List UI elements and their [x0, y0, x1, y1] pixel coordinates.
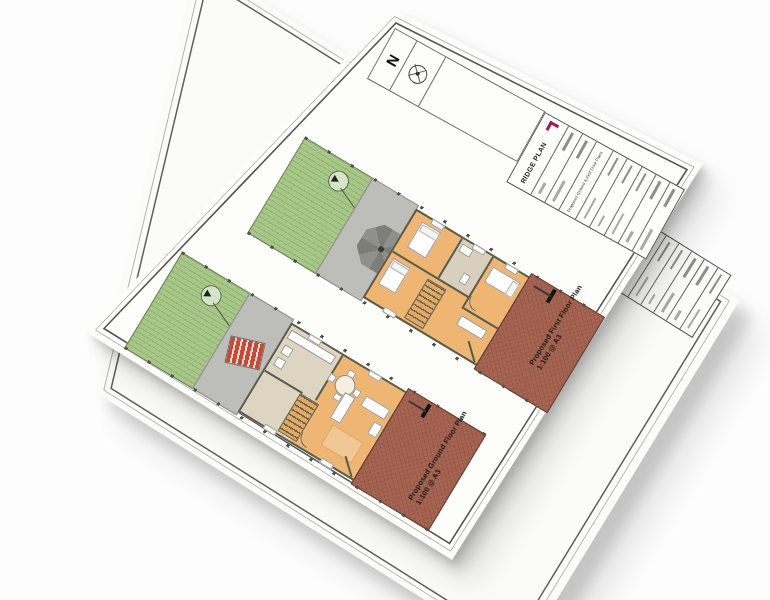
sofa: [360, 395, 390, 420]
tree-icon: [197, 281, 226, 310]
top-sheet-content: N RIDGE PLAN Proposed Ground & First Flo…: [0, 0, 770, 600]
compass-icon: [405, 61, 431, 87]
mockup-stage: 1:100 @ A3 N RIDGE PLAN: [0, 0, 770, 600]
rug: [320, 424, 363, 463]
bay-window-line: [467, 341, 475, 363]
gate-line: [408, 400, 426, 412]
gate-line: [534, 285, 552, 297]
stairs: [404, 278, 447, 329]
tree-icon: [324, 167, 353, 196]
titleblock: RIDGE PLAN Proposed Ground & First Floor…: [506, 112, 685, 260]
north-band: N: [367, 28, 546, 162]
north-label: N: [382, 51, 402, 69]
